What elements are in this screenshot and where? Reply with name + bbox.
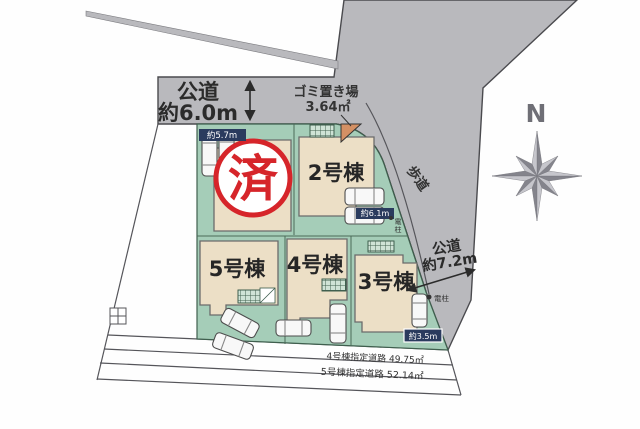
building-4-label: 4号棟 (287, 253, 345, 277)
car-icon (276, 320, 311, 336)
designated-road-1-label: 4号棟指定道路 49.75㎡ (326, 350, 424, 366)
site-plan-canvas: 2号棟 5号棟 4号棟 3号棟 済 約5.7m 約6.1m 約3.5m 公道 約… (0, 0, 640, 429)
car-icon (345, 188, 384, 205)
sold-stamp: 済 (216, 141, 290, 215)
compass-rose (492, 131, 582, 221)
garbage-label-line2: 3.64㎡ (305, 99, 350, 115)
utility-box-icon (110, 308, 126, 324)
far-road-edge-strip (86, 11, 338, 69)
pole-2-label: 電柱 (434, 293, 449, 303)
garbage-label-line1: ゴミ置き場 (293, 84, 358, 100)
measure-61-text: 約6.1m (361, 208, 390, 218)
pole-dot-icon (427, 295, 432, 300)
car-icon (330, 304, 346, 343)
pole-1-label-char1: 電 (395, 218, 402, 226)
designated-road-2-label: 5号棟指定道路 52.14㎡ (321, 366, 425, 382)
porch-grid-icon (368, 241, 394, 252)
measure-57-text: 約5.7m (207, 130, 237, 141)
site-plan-svg: 2号棟 5号棟 4号棟 3号棟 済 約5.7m 約6.1m 約3.5m 公道 約… (0, 0, 640, 429)
car-icon (412, 294, 427, 327)
building-2-label: 2号棟 (308, 161, 366, 185)
top-road-width: 約6.0m (158, 101, 238, 125)
porch-grid-icon (310, 125, 334, 137)
porch-grid-icon (322, 279, 346, 291)
sold-stamp-text: 済 (228, 150, 279, 208)
compass-north-label: N (526, 99, 547, 128)
porch-grid-icon (238, 290, 262, 303)
pole-1-label-char2: 柱 (395, 225, 402, 234)
building-3-label: 3号棟 (358, 270, 416, 294)
pole-dot-icon (389, 216, 393, 220)
measure-35-text: 約3.5m (409, 331, 438, 341)
building-5-label: 5号棟 (209, 257, 267, 281)
